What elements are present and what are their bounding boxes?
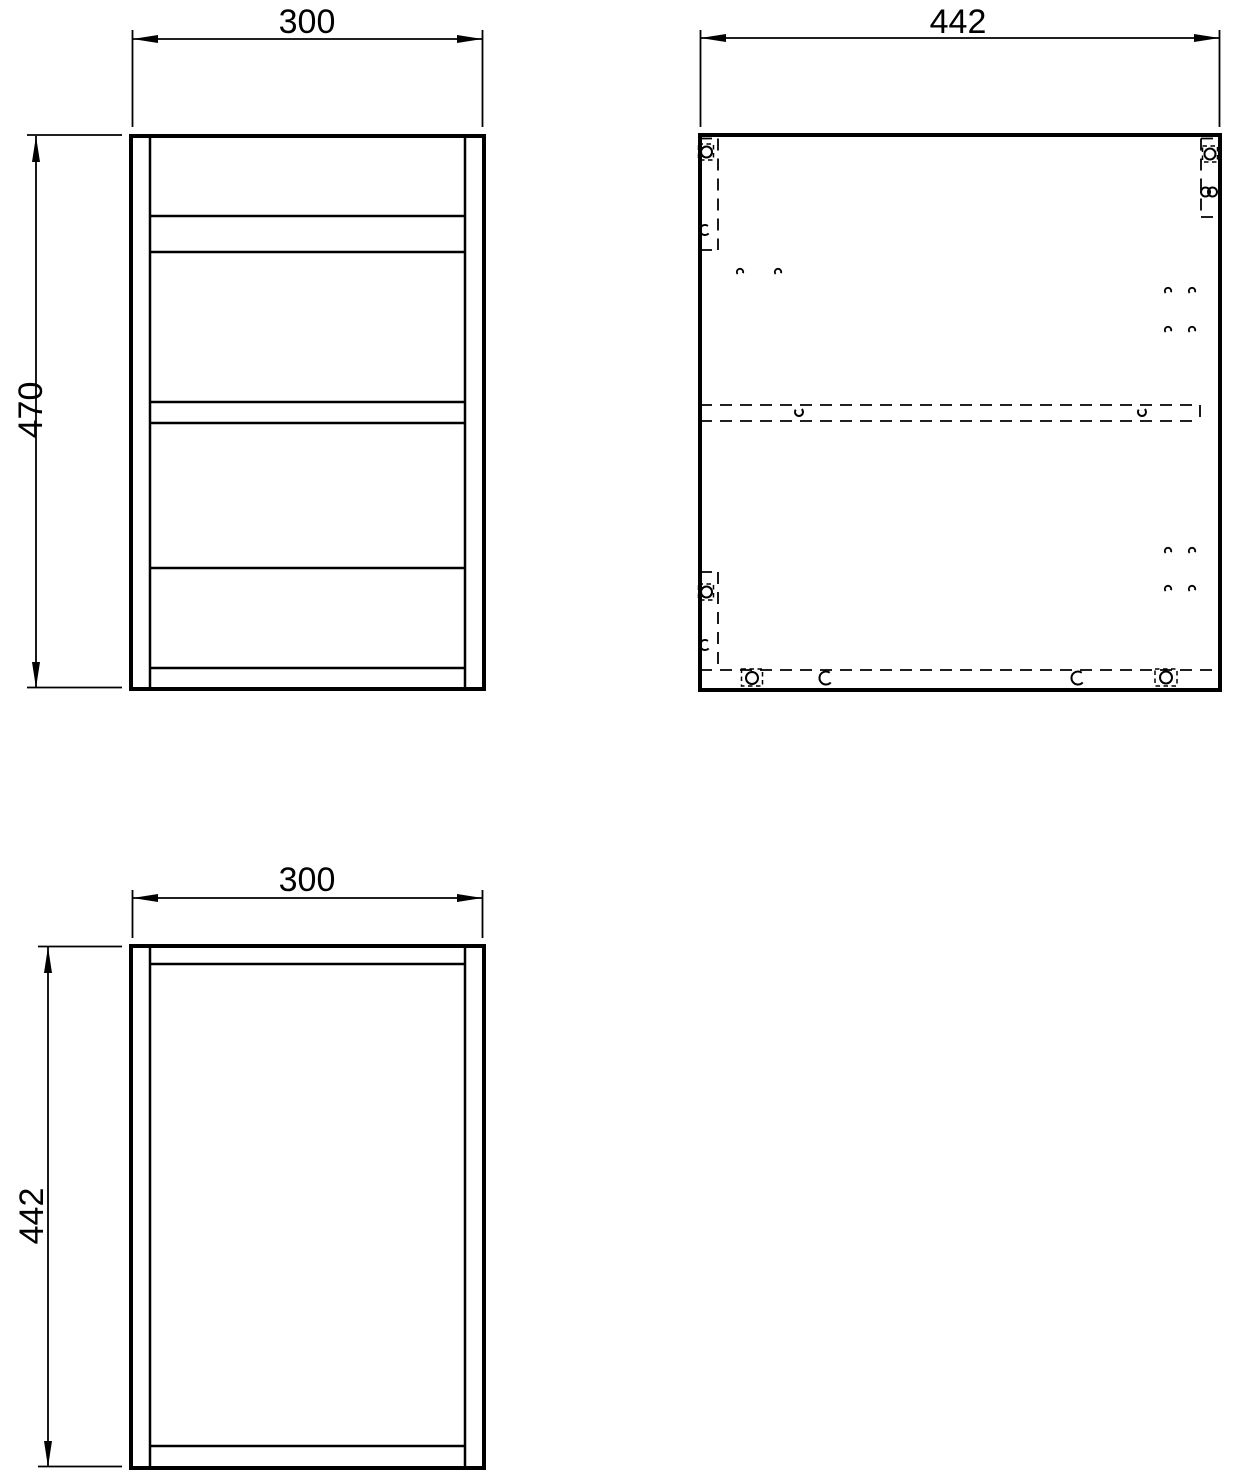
side-panel-hidden-lines — [700, 139, 1220, 671]
screw-hole — [1069, 669, 1087, 687]
pilot-hole-markers — [735, 267, 1196, 593]
fitting-hole — [1160, 672, 1172, 684]
hinge-hole — [701, 147, 712, 158]
plan-depth-dimension-label: 442 — [13, 1188, 51, 1245]
arrowhead-right — [457, 35, 483, 43]
drawing-canvas: 300 470 — [0, 0, 1233, 1478]
pilot-hole — [773, 267, 782, 276]
front-view-outline — [131, 136, 484, 689]
arrowhead-down — [44, 1441, 52, 1467]
top-view-outline — [131, 946, 484, 1468]
arrowhead-left — [701, 34, 727, 42]
pilot-hole — [1163, 325, 1172, 334]
arrowhead-up — [44, 947, 52, 973]
side-panel-view: 442 — [698, 3, 1220, 690]
pilot-hole — [1187, 325, 1196, 334]
pilot-hole — [1163, 286, 1172, 295]
front-width-dimension-lines — [133, 30, 483, 127]
pilot-hole — [735, 267, 744, 276]
side-width-dimension-lines — [701, 30, 1220, 127]
screw-hole — [1136, 406, 1147, 417]
front-width-dimension: 300 — [133, 3, 483, 127]
side-panel-outline — [700, 135, 1220, 690]
pilot-hole — [1163, 546, 1172, 555]
top-view: 300 442 — [13, 861, 484, 1468]
pilot-hole — [1187, 286, 1196, 295]
front-height-dimension: 470 — [12, 135, 122, 688]
pilot-hole — [1163, 584, 1172, 593]
front-width-dimension-label: 300 — [279, 3, 336, 41]
screw-hole — [817, 669, 835, 687]
side-width-dimension: 442 — [701, 3, 1220, 127]
pilot-hole — [1187, 584, 1196, 593]
front-height-dimension-label: 470 — [12, 382, 50, 439]
front-view: 300 470 — [12, 3, 484, 689]
hinge-hole — [701, 587, 712, 598]
screw-hole — [793, 406, 804, 417]
arrowhead-up — [32, 136, 40, 162]
arrowhead-left — [133, 894, 159, 902]
screw-hole-markers — [698, 223, 1148, 687]
top-view-panel-lines — [150, 946, 465, 1468]
side-width-dimension-label: 442 — [930, 3, 987, 41]
plan-width-dimension-label: 300 — [279, 861, 336, 899]
arrowhead-left — [133, 35, 159, 43]
arrowhead-right — [457, 894, 483, 902]
fitting-hole — [746, 672, 758, 684]
front-view-panel-and-rail-lines — [150, 136, 465, 689]
technical-drawing: 300 470 — [0, 0, 1233, 1478]
plan-width-dimension: 300 — [133, 861, 483, 938]
plan-depth-dimension: 442 — [13, 947, 122, 1468]
arrowhead-right — [1194, 34, 1220, 42]
hinge-hole — [1205, 149, 1216, 160]
arrowhead-down — [32, 662, 40, 688]
pilot-hole — [1187, 546, 1196, 555]
